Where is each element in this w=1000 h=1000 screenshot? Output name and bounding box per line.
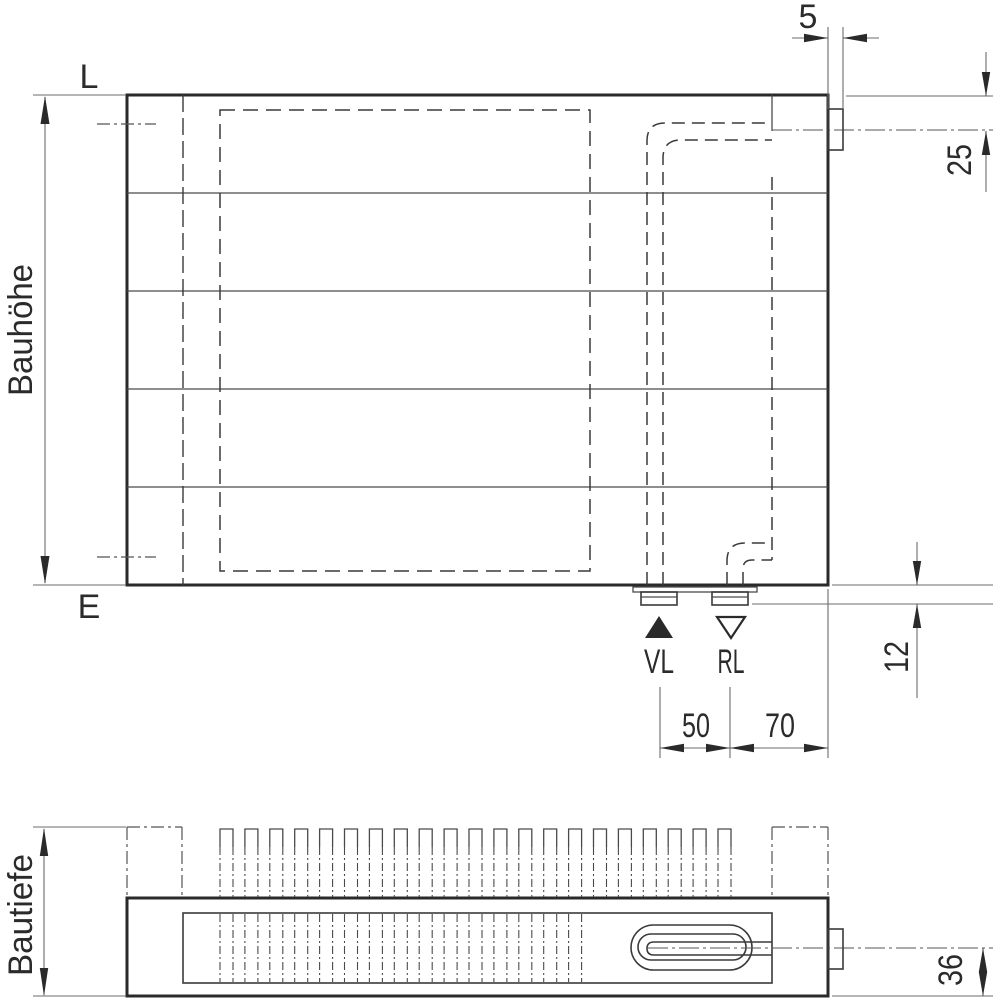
- dimension-pipe-center-offset: 36: [832, 948, 993, 996]
- fin-line: [394, 829, 407, 847]
- technical-drawing-page: VL RL Bauhöhe L E 5: [0, 0, 1000, 1000]
- return-label: RL: [718, 643, 745, 681]
- return-triangle-icon: [717, 617, 745, 638]
- fin-line: [519, 829, 532, 847]
- pipe-center-offset-label: 36: [932, 954, 970, 986]
- supply-nipple: [641, 592, 677, 605]
- fin-line: [494, 829, 507, 847]
- radiator-body-outline: [127, 95, 828, 585]
- fin-line: [618, 829, 631, 847]
- tab-width-label: 5: [799, 0, 818, 36]
- vent-label: L: [80, 58, 99, 96]
- dimension-connection-protrusion: 12: [752, 542, 993, 698]
- panel-section-lines: [127, 193, 828, 487]
- pipe-pocket-inner: [638, 934, 746, 960]
- depth-dimension-label: Bautiefe: [2, 854, 40, 976]
- fin-line: [718, 829, 731, 847]
- fin-line: [345, 829, 358, 847]
- fin-line: [469, 829, 482, 847]
- fin-line: [320, 829, 333, 847]
- supply-label: VL: [644, 643, 674, 681]
- fin-line: [444, 829, 457, 847]
- dimension-top-tapping-offset: 25: [846, 52, 993, 192]
- phantom-lines: [127, 827, 828, 897]
- convector-fins: [220, 829, 731, 982]
- dimension-tab-width: 5: [792, 0, 879, 109]
- top-view: Bautiefe 36: [2, 827, 993, 996]
- front-view: VL RL Bauhöhe L E 5: [2, 0, 993, 758]
- dimension-bauhoehe: Bauhöhe: [2, 95, 126, 585]
- rear-tapping-nipple: [828, 929, 843, 969]
- return-edge-spacing-label: 70: [765, 707, 795, 745]
- return-nipple: [712, 592, 748, 605]
- dimension-bautiefe: Bautiefe: [2, 827, 126, 996]
- fin-line: [270, 829, 283, 847]
- fin-line: [220, 829, 233, 847]
- fin-line: [693, 829, 706, 847]
- fin-line: [643, 829, 656, 847]
- drain-label: E: [78, 588, 101, 626]
- connection-protrusion-label: 12: [878, 641, 916, 673]
- fin-line: [245, 829, 258, 847]
- supply-return-spacing-label: 50: [682, 707, 710, 745]
- fin-line: [569, 829, 582, 847]
- fin-line: [419, 829, 432, 847]
- fin-line: [668, 829, 681, 847]
- fin-line: [544, 829, 557, 847]
- bottom-connections: VL RL: [633, 587, 757, 681]
- fin-line: [594, 829, 607, 847]
- fin-line: [295, 829, 308, 847]
- internal-piping: [647, 95, 772, 585]
- top-tapping-offset-label: 25: [941, 144, 979, 176]
- radiator-dimension-drawing: VL RL Bauhöhe L E 5: [0, 0, 1000, 1000]
- fin-line: [369, 829, 382, 847]
- convector-hidden-outline: [220, 110, 590, 571]
- height-dimension-label: Bauhöhe: [2, 264, 40, 396]
- supply-triangle-icon: [645, 616, 673, 638]
